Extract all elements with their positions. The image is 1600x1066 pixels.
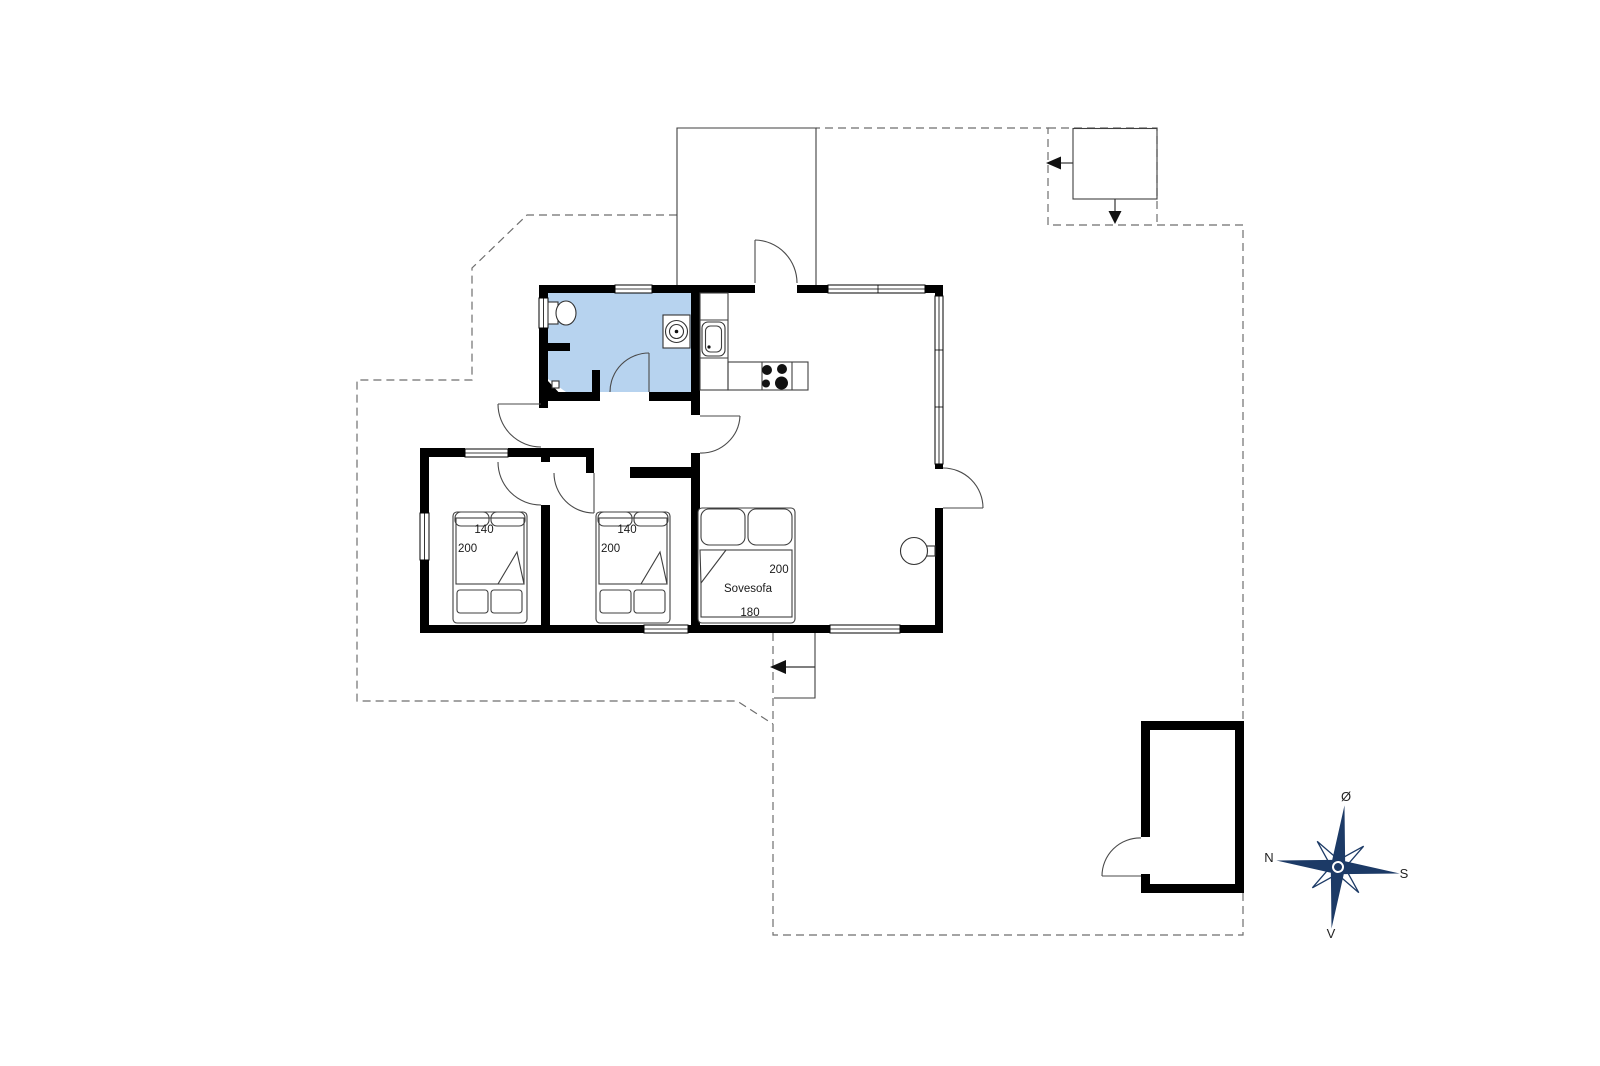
compass-label-south: S: [1400, 866, 1409, 881]
wall-bedroom2-north: [630, 467, 691, 478]
wall-south: [420, 625, 644, 633]
kitchen-sink-drain-dot: [707, 345, 710, 348]
bedroom2-door-arc: [554, 473, 594, 513]
terrace-door-arc: [943, 468, 983, 508]
garage: [1102, 721, 1244, 893]
bed-pillow-icon: [634, 512, 668, 526]
washbasin-drain-dot: [675, 330, 679, 334]
compass-label-east: Ø: [1341, 789, 1351, 804]
compass-label-north: N: [1264, 850, 1273, 865]
sofa-bed-pillow-icon: [701, 509, 745, 545]
access-arrow-down-icon: [1109, 211, 1122, 224]
bed-length-label: 200: [601, 543, 620, 555]
wall: [420, 560, 429, 633]
wood-stove-icon: [901, 538, 928, 565]
wall-bedroom-divider: [541, 505, 550, 625]
bed-width-label: 140: [474, 524, 493, 536]
wall-bathroom-stub: [548, 343, 570, 351]
annex-walls: [677, 128, 816, 285]
access-area-northeast: [1046, 129, 1157, 225]
bed-cushion: [600, 590, 631, 613]
bed-cushion: [457, 590, 488, 613]
hall-living-door-arc: [700, 416, 740, 453]
wall: [592, 370, 600, 401]
wall-east: [935, 285, 943, 296]
bed-cushion: [634, 590, 665, 613]
garage-wall: [1141, 874, 1150, 893]
wall-east: [935, 464, 943, 469]
toilet-bowl-icon: [556, 301, 576, 325]
compass-rose: Ø S V N: [1264, 789, 1408, 941]
entry-door-arc: [498, 404, 541, 447]
wall: [550, 448, 586, 457]
stove-burner-icon: [777, 364, 787, 374]
annex-door-arc: [755, 240, 797, 283]
stove-burner-icon: [775, 377, 788, 390]
floorplan-page: 140 200 140 200 200 Sovesofa 180: [0, 0, 1600, 1066]
garage-door-arc: [1102, 838, 1141, 876]
bed-bedroom2: 140 200: [596, 512, 670, 623]
stove-burner-icon: [762, 365, 772, 375]
wall: [652, 285, 755, 293]
bedroom1-door-arc: [498, 462, 541, 505]
sofa-name-label: Sovesofa: [724, 583, 773, 595]
wall: [541, 448, 550, 462]
wall: [420, 448, 429, 513]
bed-bedroom1: 140 200: [453, 512, 527, 623]
floorplan-canvas: 140 200 140 200 200 Sovesofa 180: [0, 0, 1600, 1066]
access-step-box: [1073, 129, 1157, 200]
bed-pillow-icon: [491, 512, 525, 526]
floor-drain-icon: [552, 381, 559, 388]
sofa-bed-pillow-icon: [748, 509, 792, 545]
wall-south: [688, 625, 830, 633]
sofa-bed: 200 Sovesofa 180: [698, 508, 795, 623]
boundary-entry-box: [1048, 128, 1157, 225]
wall: [586, 448, 594, 473]
garage-wall: [1141, 884, 1244, 893]
stove-burner-icon: [762, 380, 770, 388]
south-entrance: [770, 633, 815, 698]
garage-wall: [1235, 721, 1244, 893]
wall: [543, 392, 592, 401]
annex: [677, 128, 816, 285]
wall: [508, 448, 541, 457]
garage-floor: [1141, 721, 1244, 893]
kitchen: [700, 293, 808, 390]
wall: [539, 285, 615, 293]
wall-east: [935, 508, 943, 633]
garage-wall: [1141, 721, 1244, 730]
wall-kitchen-divider: [691, 293, 700, 415]
bed-width-label: 140: [617, 524, 636, 536]
bed-cushion: [491, 590, 522, 613]
sofa-length-label: 200: [769, 564, 788, 576]
sofa-width-label: 180: [740, 607, 759, 619]
compass-label-west: V: [1327, 926, 1336, 941]
garage-wall: [1141, 721, 1150, 837]
wall: [797, 285, 828, 293]
wall: [649, 392, 691, 401]
wood-stove: [901, 538, 936, 565]
bed-length-label: 200: [458, 543, 477, 555]
